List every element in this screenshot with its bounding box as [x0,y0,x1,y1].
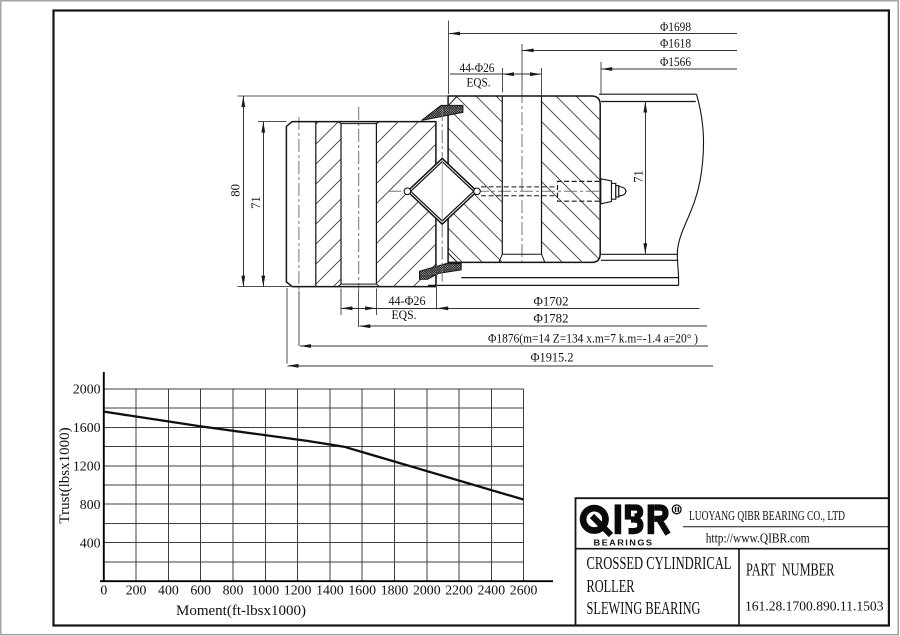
svg-text:LUOYANG QIBR BEARING CO., LTD: LUOYANG QIBR BEARING CO., LTD [689,508,845,523]
svg-text:Φ1618: Φ1618 [660,37,691,51]
svg-text:1800: 1800 [381,583,409,598]
svg-text:2000: 2000 [413,583,441,598]
svg-text:1400: 1400 [316,583,344,598]
svg-text:44-Φ26: 44-Φ26 [460,61,495,75]
svg-text:PART NUMBER: PART NUMBER [746,560,835,580]
svg-text:2400: 2400 [478,583,506,598]
svg-text:400: 400 [80,535,101,550]
svg-text:71: 71 [631,170,645,183]
svg-text:http://www.QIBR.com: http://www.QIBR.com [706,531,810,546]
svg-text:600: 600 [190,583,211,598]
svg-text:2000: 2000 [73,381,101,396]
svg-text:EQS.: EQS. [467,76,491,90]
svg-text:1600: 1600 [348,583,376,598]
svg-text:Φ1876(m=14 Z=134 x.m=7 k.m=-1.: Φ1876(m=14 Z=134 x.m=7 k.m=-1.4 a=20° ) [488,332,698,346]
svg-text:Φ1915.2: Φ1915.2 [531,351,574,365]
svg-text:1200: 1200 [73,458,101,473]
svg-text:800: 800 [223,583,244,598]
svg-text:1000: 1000 [252,583,280,598]
svg-text:Φ1702: Φ1702 [534,295,569,309]
svg-text:Trust(lbsx1000): Trust(lbsx1000) [57,427,73,523]
svg-text:71: 71 [249,196,263,209]
svg-text:Φ1698: Φ1698 [660,20,691,34]
svg-text:BEARINGS: BEARINGS [594,537,654,547]
svg-text:2600: 2600 [510,583,538,598]
svg-text:2200: 2200 [445,583,473,598]
svg-text:Φ1782: Φ1782 [534,311,569,325]
svg-text:Moment(ft-lbsx1000): Moment(ft-lbsx1000) [176,603,306,619]
svg-text:1600: 1600 [73,420,101,435]
svg-text:200: 200 [126,583,147,598]
svg-text:1200: 1200 [284,583,312,598]
svg-text:EQS.: EQS. [392,308,417,322]
svg-text:800: 800 [80,497,101,512]
svg-text:161.28.1700.890.11.1503: 161.28.1700.890.11.1503 [745,599,884,614]
svg-text:80: 80 [229,184,243,197]
svg-text:ROLLER: ROLLER [587,576,635,596]
svg-text:SLEWING BEARING: SLEWING BEARING [587,598,701,618]
svg-text:Φ1566: Φ1566 [660,55,692,69]
svg-text:CROSSED CYLINDRICAL: CROSSED CYLINDRICAL [587,553,732,573]
svg-text:44-Φ26: 44-Φ26 [389,294,426,308]
svg-text:400: 400 [158,583,179,598]
svg-text:0: 0 [100,583,107,598]
